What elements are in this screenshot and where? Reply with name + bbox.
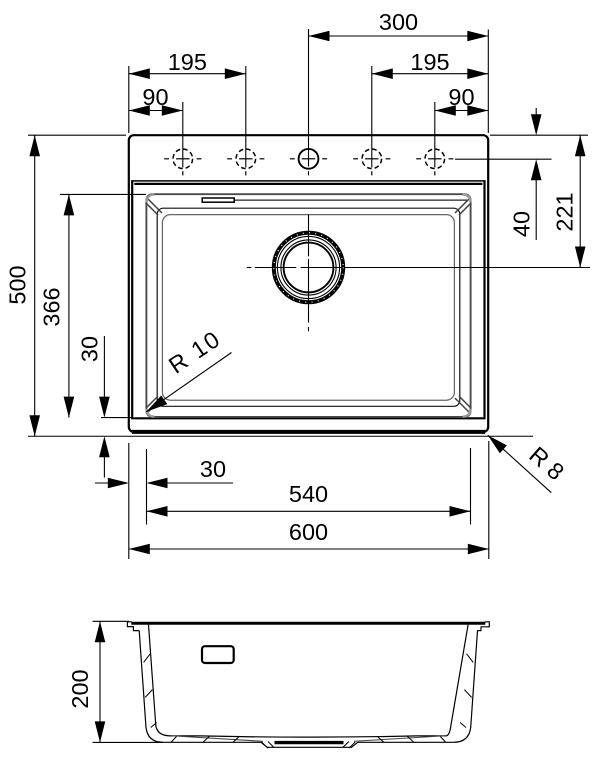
svg-text:90: 90: [142, 84, 168, 110]
svg-text:500: 500: [5, 265, 31, 304]
svg-text:300: 300: [379, 9, 418, 35]
svg-text:30: 30: [76, 336, 102, 362]
svg-text:221: 221: [552, 192, 578, 231]
svg-text:30: 30: [200, 456, 226, 482]
svg-text:195: 195: [168, 49, 207, 75]
svg-text:540: 540: [289, 481, 328, 507]
svg-text:366: 366: [38, 287, 64, 326]
svg-text:200: 200: [67, 669, 93, 708]
svg-text:195: 195: [410, 49, 449, 75]
svg-text:600: 600: [289, 519, 328, 545]
svg-text:40: 40: [509, 211, 535, 237]
svg-text:90: 90: [448, 84, 474, 110]
